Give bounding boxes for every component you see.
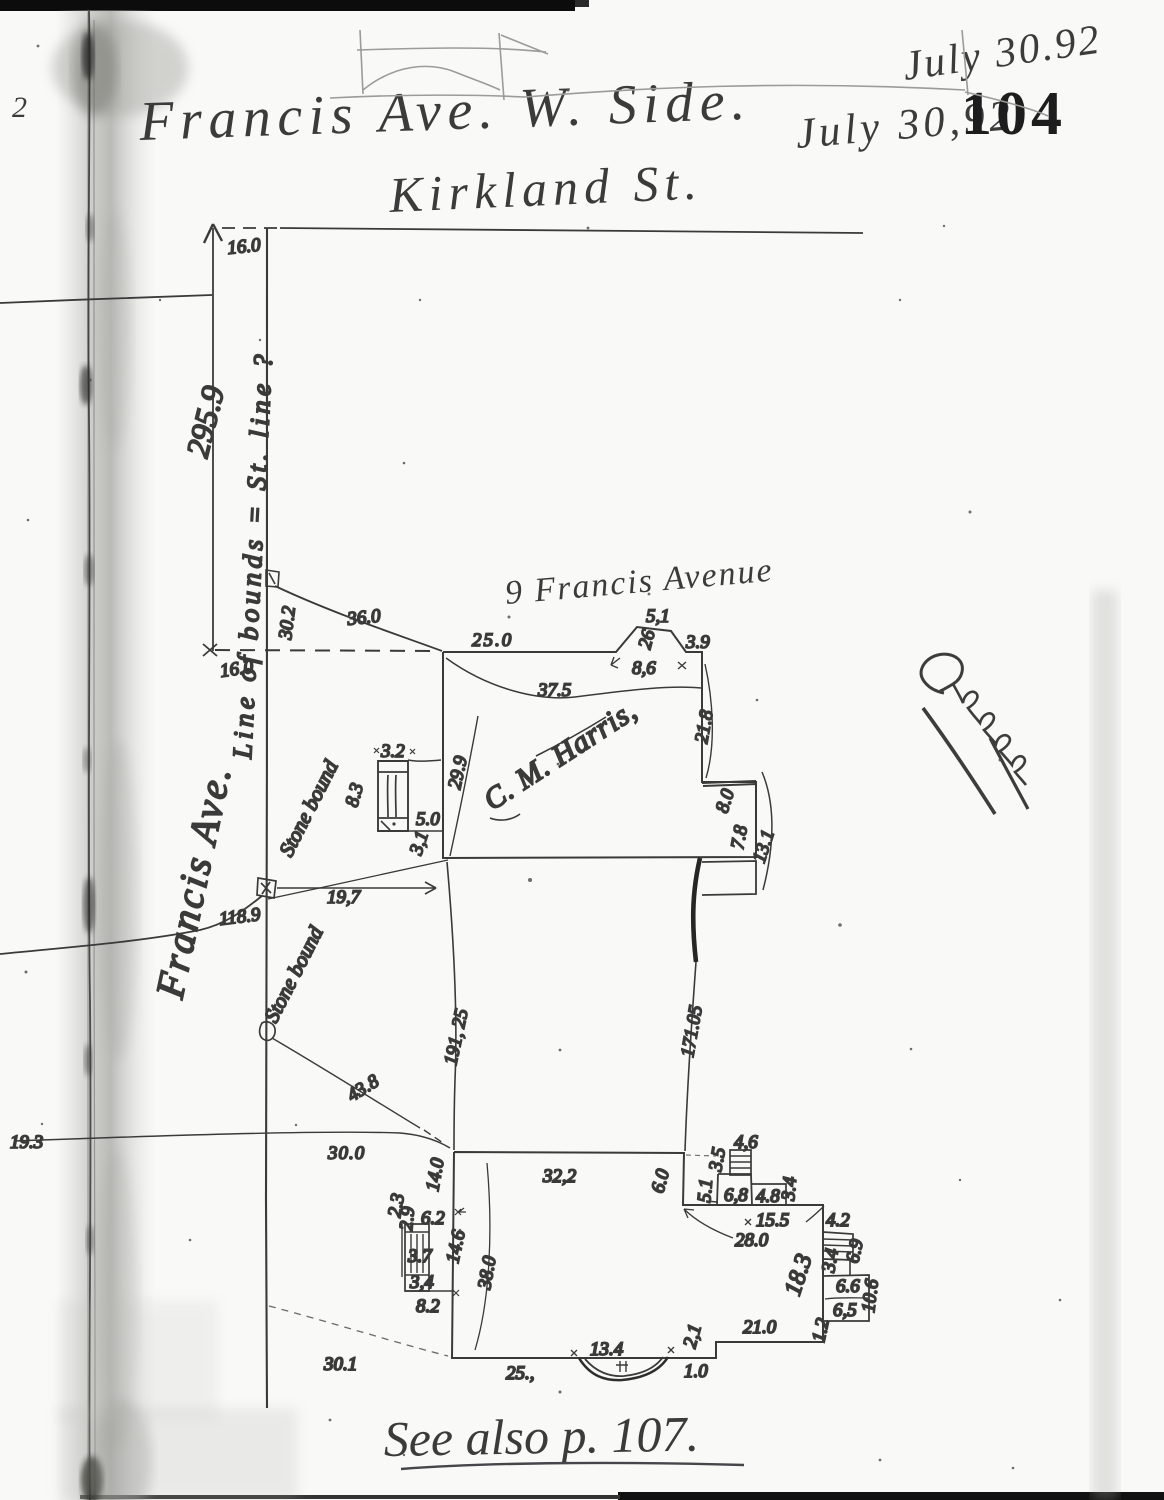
svg-text:6.6: 6.6 <box>836 1276 860 1297</box>
svg-text:28.0: 28.0 <box>735 1230 769 1251</box>
svg-text:3.2: 3.2 <box>380 741 405 762</box>
svg-text:10.6: 10.6 <box>858 1278 883 1314</box>
svg-text:2: 2 <box>12 91 27 124</box>
svg-text:6,8: 6,8 <box>724 1185 748 1206</box>
svg-text:15.5: 15.5 <box>756 1210 789 1231</box>
svg-text:3.7: 3.7 <box>407 1246 433 1267</box>
svg-text:4,6: 4,6 <box>734 1132 758 1153</box>
svg-text:1.0: 1.0 <box>684 1361 708 1382</box>
svg-text:8.2: 8.2 <box>416 1296 440 1317</box>
svg-text:104: 104 <box>961 80 1066 148</box>
svg-text:4.8: 4.8 <box>756 1186 780 1207</box>
svg-text:30.2: 30.2 <box>275 605 300 642</box>
svg-text:8,6: 8,6 <box>632 658 656 679</box>
svg-text:2.9: 2.9 <box>396 1205 419 1231</box>
svg-text:21.0: 21.0 <box>743 1317 777 1338</box>
svg-text:30.1: 30.1 <box>323 1354 357 1375</box>
svg-text:37.5: 37.5 <box>537 680 571 701</box>
svg-text:5.1: 5.1 <box>694 1178 717 1203</box>
svg-text:3.9: 3.9 <box>685 632 710 653</box>
svg-text:6.2: 6.2 <box>421 1208 445 1229</box>
svg-text:6,5: 6,5 <box>833 1300 857 1321</box>
svg-text:5,1: 5,1 <box>646 606 670 627</box>
svg-text:16.0: 16.0 <box>226 235 262 259</box>
svg-text:See also p. 107.: See also p. 107. <box>383 1406 699 1467</box>
svg-text:5.0: 5.0 <box>416 809 440 830</box>
svg-text:25.,: 25., <box>506 1363 535 1384</box>
svg-text:25.0: 25.0 <box>472 630 513 651</box>
svg-text:3.5: 3.5 <box>705 1146 730 1174</box>
svg-text:3,4: 3,4 <box>409 1272 434 1293</box>
svg-text:30.0: 30.0 <box>327 1143 365 1164</box>
svg-text:32,2: 32,2 <box>542 1166 577 1187</box>
svg-text:7.8: 7.8 <box>727 823 752 851</box>
svg-text:13.4: 13.4 <box>590 1339 624 1360</box>
svg-text:3.4: 3.4 <box>778 1175 801 1202</box>
svg-text:4.2: 4.2 <box>826 1210 850 1231</box>
svg-text:19,7: 19,7 <box>327 887 362 908</box>
svg-text:36.0: 36.0 <box>345 606 382 631</box>
svg-text:19.3: 19.3 <box>10 1132 43 1153</box>
svg-text:3.4: 3.4 <box>818 1246 843 1275</box>
